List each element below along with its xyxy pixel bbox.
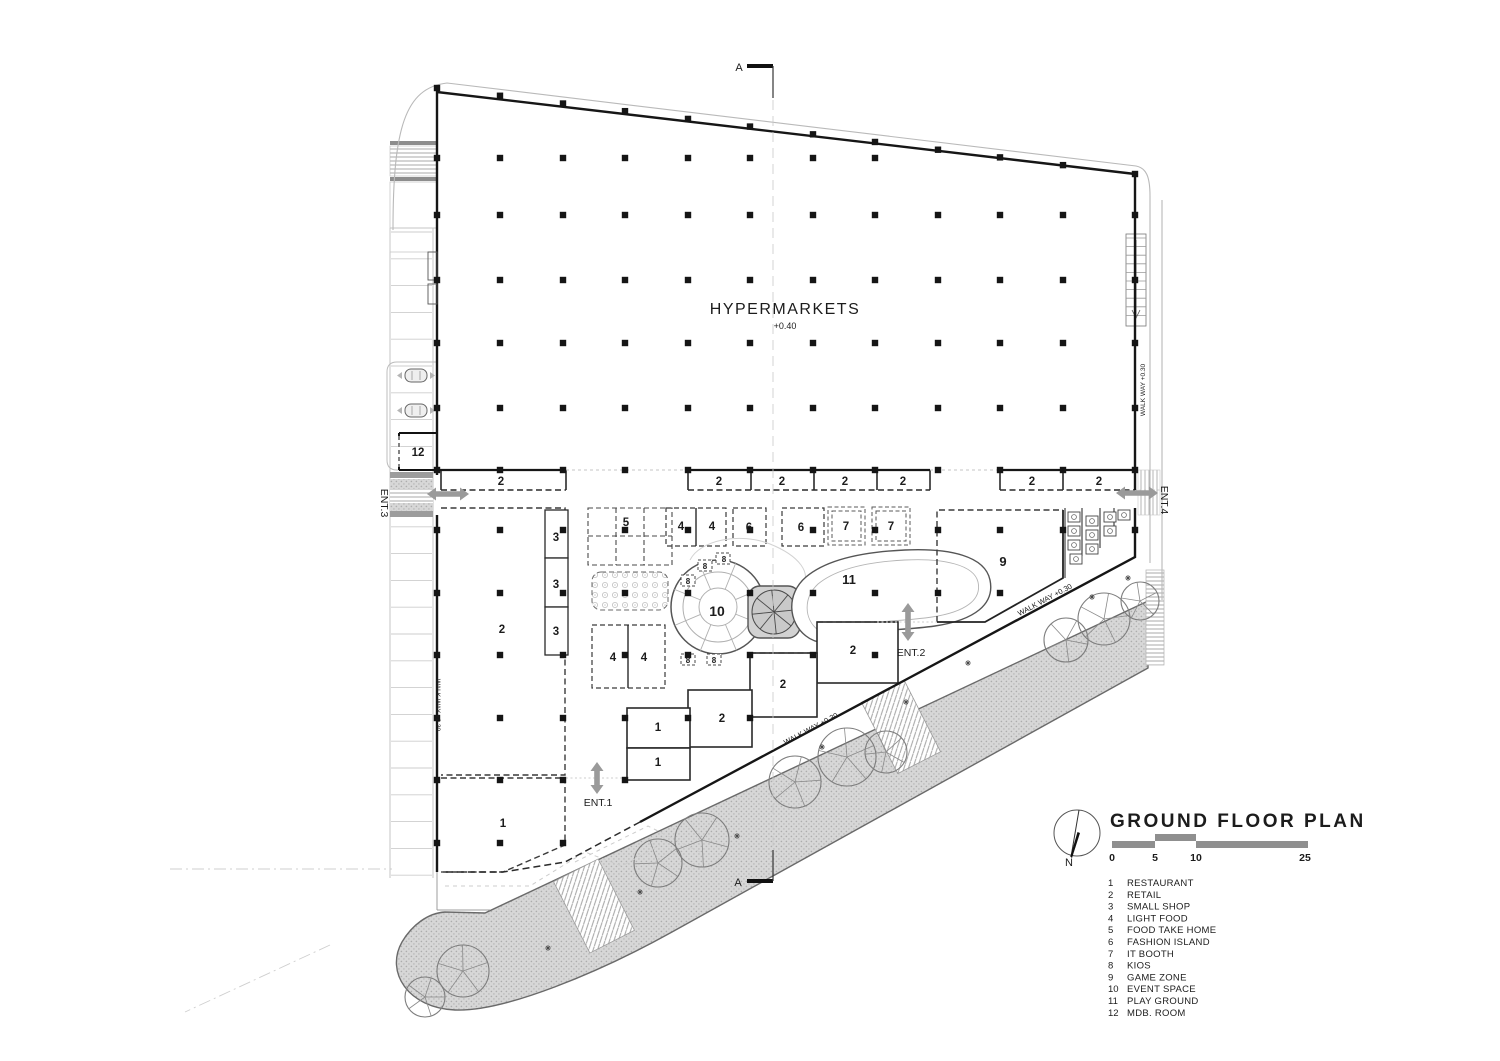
column-marker <box>872 340 878 346</box>
column-marker <box>1132 171 1138 177</box>
column-marker <box>1060 467 1066 473</box>
scale-bar: 0 5 10 25 <box>1109 834 1311 864</box>
room-label: 7 <box>888 521 894 533</box>
column-marker <box>872 652 878 658</box>
room-label: 1 <box>655 722 662 734</box>
column-marker <box>872 590 878 596</box>
scale-tick: 0 <box>1109 852 1115 864</box>
column-marker <box>685 116 691 122</box>
column-marker <box>560 777 566 783</box>
planter-bed <box>592 572 668 610</box>
svg-text:IT BOOTH: IT BOOTH <box>1127 949 1174 960</box>
plant-icon <box>819 744 825 750</box>
room-label: 2 <box>499 624 505 636</box>
column-marker <box>935 340 941 346</box>
column-marker <box>434 155 440 161</box>
column-marker <box>1132 277 1138 283</box>
room-label: 2 <box>780 679 786 691</box>
legend-item: 7IT BOOTH <box>1108 949 1174 960</box>
legend-item: 4LIGHT FOOD <box>1108 913 1188 924</box>
legend-item: 9GAME ZONE <box>1108 972 1187 983</box>
legend-item: 1RESTAURANT <box>1108 878 1194 889</box>
room-label: 2 <box>1096 476 1102 488</box>
column-marker <box>685 527 691 533</box>
column-marker <box>560 100 566 106</box>
column-marker <box>747 340 753 346</box>
column-marker <box>622 277 628 283</box>
column-marker <box>1132 405 1138 411</box>
column-marker <box>810 212 816 218</box>
room-label: 8 <box>686 656 691 665</box>
svg-text:RETAIL: RETAIL <box>1127 890 1161 901</box>
svg-text:PLAY GROUND: PLAY GROUND <box>1127 996 1199 1007</box>
column-marker <box>685 405 691 411</box>
column-marker <box>997 467 1003 473</box>
column-marker <box>810 131 816 137</box>
outer-envelope <box>393 83 1162 600</box>
scale-tick: 25 <box>1299 852 1311 864</box>
column-marker <box>685 155 691 161</box>
plant-icon <box>965 660 971 666</box>
column-marker <box>810 590 816 596</box>
svg-text:1: 1 <box>1108 878 1113 889</box>
toilet-stall-icon <box>1086 516 1098 526</box>
column-marker <box>935 277 941 283</box>
column-marker <box>747 467 753 473</box>
column-marker <box>560 715 566 721</box>
column-marker <box>622 155 628 161</box>
entrance-label: ENT.2 <box>897 647 926 659</box>
ramp-hatch <box>390 141 437 252</box>
rooms-7 <box>828 507 910 545</box>
room-label: 4 <box>641 652 648 664</box>
parking-stalls <box>391 232 432 875</box>
column-marker <box>560 840 566 846</box>
room-label: 8 <box>703 562 708 571</box>
column-marker <box>497 155 503 161</box>
room-label: 9 <box>999 554 1006 569</box>
hall-label: HYPERMARKETS <box>710 301 860 318</box>
column-marker <box>560 590 566 596</box>
column-marker <box>434 212 440 218</box>
column-marker <box>560 340 566 346</box>
room-label: 5 <box>623 517 630 529</box>
svg-text:6: 6 <box>1108 937 1113 948</box>
room-label: 11 <box>842 572 856 587</box>
column-marker <box>1132 340 1138 346</box>
column-marker <box>685 340 691 346</box>
toilet-stall-icon <box>1068 526 1080 536</box>
column-marker <box>497 840 503 846</box>
svg-text:11: 11 <box>1108 996 1118 1007</box>
column-marker <box>872 405 878 411</box>
svg-text:KIOS: KIOS <box>1127 961 1151 972</box>
column-marker <box>872 139 878 145</box>
column-marker <box>622 340 628 346</box>
room-label: 4 <box>678 521 685 533</box>
column-marker <box>1060 212 1066 218</box>
north-label: N <box>1065 857 1073 869</box>
column-marker <box>872 527 878 533</box>
column-marker <box>935 467 941 473</box>
room-label: 2 <box>1029 476 1035 488</box>
walkway-label: WALK WAY +0.30 <box>434 679 441 732</box>
column-marker <box>497 652 503 658</box>
restrooms <box>1065 508 1130 578</box>
column-marker <box>685 277 691 283</box>
toilet-stall-icon <box>1118 510 1130 520</box>
svg-text:8: 8 <box>1108 961 1113 972</box>
north-arrow-icon: N <box>1054 810 1100 869</box>
column-marker <box>434 340 440 346</box>
column-marker <box>622 715 628 721</box>
column-marker <box>747 715 753 721</box>
column-marker <box>997 527 1003 533</box>
column-marker <box>434 85 440 91</box>
svg-text:LIGHT FOOD: LIGHT FOOD <box>1127 913 1188 924</box>
room-label: 1 <box>500 818 507 830</box>
legend-title: GROUND FLOOR PLAN <box>1110 811 1366 832</box>
column-marker <box>685 467 691 473</box>
column-marker <box>560 652 566 658</box>
svg-text:MDB. ROOM: MDB. ROOM <box>1127 1008 1186 1019</box>
toilet-stall-icon <box>1070 554 1082 564</box>
room-label: 7 <box>843 521 849 533</box>
legend-item: 3SMALL SHOP <box>1108 902 1190 913</box>
room-label: 2 <box>842 476 848 488</box>
column-marker <box>810 652 816 658</box>
column-marker <box>997 405 1003 411</box>
column-marker <box>560 155 566 161</box>
room-label: 3 <box>553 532 559 544</box>
legend-item: 11PLAY GROUND <box>1108 996 1199 1007</box>
column-marker <box>1132 212 1138 218</box>
entrance-arrow-icon <box>1116 487 1158 500</box>
entrance-label: ENT.3 <box>378 489 390 518</box>
svg-text:FOOD TAKE HOME: FOOD TAKE HOME <box>1127 925 1216 936</box>
svg-text:2: 2 <box>1108 890 1113 901</box>
column-marker <box>497 277 503 283</box>
column-marker <box>1132 467 1138 473</box>
ent3-crossing <box>390 472 433 517</box>
column-marker <box>747 123 753 129</box>
column-marker <box>497 340 503 346</box>
svg-text:GAME ZONE: GAME ZONE <box>1127 972 1187 983</box>
column-marker <box>497 777 503 783</box>
column-marker <box>997 212 1003 218</box>
room-label: 10 <box>709 603 725 619</box>
column-marker <box>747 155 753 161</box>
column-marker <box>810 155 816 161</box>
svg-text:9: 9 <box>1108 972 1113 983</box>
column-marker <box>434 777 440 783</box>
legend-item: 10EVENT SPACE <box>1108 984 1196 995</box>
toilet-stall-icon <box>1086 530 1098 540</box>
room-4-bottom <box>592 625 665 688</box>
room-4-top <box>666 508 726 546</box>
svg-text:SMALL SHOP: SMALL SHOP <box>1127 902 1190 913</box>
room-label: 3 <box>553 579 559 591</box>
entrance-arrow-icon <box>427 488 469 501</box>
room-label: 1 <box>655 757 662 769</box>
column-marker <box>747 212 753 218</box>
room-label: 12 <box>412 447 425 459</box>
column-marker <box>497 405 503 411</box>
column-marker <box>497 590 503 596</box>
column-marker <box>810 527 816 533</box>
column-marker <box>810 277 816 283</box>
legend-items: 1RESTAURANT2RETAIL3SMALL SHOP4LIGHT FOOD… <box>1108 878 1216 1019</box>
hall-level: +0.40 <box>774 321 797 331</box>
column-marker <box>434 467 440 473</box>
column-marker <box>560 527 566 533</box>
svg-text:RESTAURANT: RESTAURANT <box>1127 878 1194 889</box>
svg-text:5: 5 <box>1108 925 1113 936</box>
plan-labels: HYPERMARKETS +0.40 WALK WAY +0.30 WALK W… <box>412 301 1147 830</box>
room-label: 4 <box>610 652 617 664</box>
column-marker <box>434 405 440 411</box>
column-marker <box>622 777 628 783</box>
column-marker <box>935 405 941 411</box>
column-marker <box>1060 277 1066 283</box>
column-marker <box>560 212 566 218</box>
floor-plan-page: A A HYPERMARKETS +0.40 WALK WAY +0.30 WA… <box>0 0 1500 1061</box>
column-marker <box>560 467 566 473</box>
column-marker <box>935 147 941 153</box>
column-marker <box>872 155 878 161</box>
floor-plan-svg: A A HYPERMARKETS +0.40 WALK WAY +0.30 WA… <box>0 0 1500 1061</box>
column-marker <box>872 277 878 283</box>
room-label: 8 <box>712 656 717 665</box>
section-markers: A A <box>734 62 773 889</box>
column-marker <box>747 405 753 411</box>
elevator-icon <box>397 404 435 417</box>
column-marker <box>622 652 628 658</box>
svg-text:EVENT SPACE: EVENT SPACE <box>1127 984 1196 995</box>
svg-text:12: 12 <box>1108 1008 1119 1019</box>
column-marker <box>935 527 941 533</box>
column-marker <box>810 467 816 473</box>
column-marker <box>622 212 628 218</box>
svg-text:4: 4 <box>1108 913 1113 924</box>
svg-text:3: 3 <box>1108 902 1113 913</box>
scale-tick: 5 <box>1152 852 1158 864</box>
room-label: 2 <box>498 476 504 488</box>
room-label: 2 <box>716 476 722 488</box>
room-label: 4 <box>709 521 716 533</box>
column-marker <box>622 467 628 473</box>
entrance-arrow-icon <box>591 762 604 794</box>
column-marker <box>747 277 753 283</box>
scale-tick: 10 <box>1190 852 1202 864</box>
legend-item: 6FASHION ISLAND <box>1108 937 1210 948</box>
room-label: 2 <box>900 476 906 488</box>
room-label: 2 <box>719 713 725 725</box>
room-number-labels: 22222221223331544667744101198888822211 <box>412 447 1103 830</box>
column-marker <box>997 590 1003 596</box>
elevator-icon <box>397 369 435 382</box>
site-ground <box>170 570 1164 1017</box>
column-marker <box>685 715 691 721</box>
column-marker <box>872 467 878 473</box>
column-marker <box>434 840 440 846</box>
column-marker <box>622 590 628 596</box>
column-marker <box>560 405 566 411</box>
toilet-stall-icon <box>1104 512 1116 522</box>
column-marker <box>1060 527 1066 533</box>
column-marker <box>810 340 816 346</box>
toilet-stall-icon <box>1068 540 1080 550</box>
room-label: 6 <box>798 522 804 534</box>
legend: N GROUND FLOOR PLAN 0 5 10 25 1RESTAURAN… <box>1054 810 1366 1019</box>
section-label: A <box>734 877 742 889</box>
column-marker <box>872 212 878 218</box>
column-marker <box>434 277 440 283</box>
toilet-stall-icon <box>1068 512 1080 522</box>
column-marker <box>935 590 941 596</box>
svg-text:7: 7 <box>1108 949 1113 960</box>
room-label: 6 <box>746 522 752 534</box>
column-marker <box>997 277 1003 283</box>
property-lines <box>170 869 392 1012</box>
column-marker <box>997 340 1003 346</box>
section-label: A <box>735 62 743 74</box>
column-marker <box>622 108 628 114</box>
column-marker <box>622 405 628 411</box>
column-marker <box>810 405 816 411</box>
toilet-stall-icon <box>1086 544 1098 554</box>
column-marker <box>685 590 691 596</box>
legend-item: 2RETAIL <box>1108 890 1161 901</box>
column-marker <box>1060 405 1066 411</box>
column-marker <box>997 154 1003 160</box>
column-marker <box>497 212 503 218</box>
legend-item: 5FOOD TAKE HOME <box>1108 925 1216 936</box>
column-marker <box>1060 340 1066 346</box>
room-5-grid <box>588 508 672 565</box>
column-marker <box>434 527 440 533</box>
room-label: 8 <box>722 555 727 564</box>
plant-icon <box>1125 575 1131 581</box>
room-label: 2 <box>779 476 785 488</box>
legend-item: 12MDB. ROOM <box>1108 1008 1186 1019</box>
room-2-left <box>441 508 568 775</box>
column-marker <box>935 212 941 218</box>
column-marker <box>560 277 566 283</box>
legend-item: 8KIOS <box>1108 961 1151 972</box>
column-marker <box>434 590 440 596</box>
column-marker <box>497 527 503 533</box>
column-marker <box>685 212 691 218</box>
room-label: 3 <box>553 626 559 638</box>
column-marker <box>1060 162 1066 168</box>
svg-text:10: 10 <box>1108 984 1119 995</box>
toilet-stall-icon <box>1104 526 1116 536</box>
walkway-label: WALK WAY +0.30 <box>1140 364 1147 417</box>
room-label: 2 <box>850 645 856 657</box>
column-marker <box>434 652 440 658</box>
entrance-label: ENT.1 <box>584 797 613 809</box>
column-marker <box>747 590 753 596</box>
svg-text:FASHION ISLAND: FASHION ISLAND <box>1127 937 1210 948</box>
column-marker <box>497 93 503 99</box>
column-marker <box>747 652 753 658</box>
column-marker <box>497 715 503 721</box>
room-label: 8 <box>686 577 691 586</box>
entrance-label: ENT.4 <box>1158 486 1170 515</box>
column-marker <box>1132 527 1138 533</box>
column-marker <box>497 467 503 473</box>
